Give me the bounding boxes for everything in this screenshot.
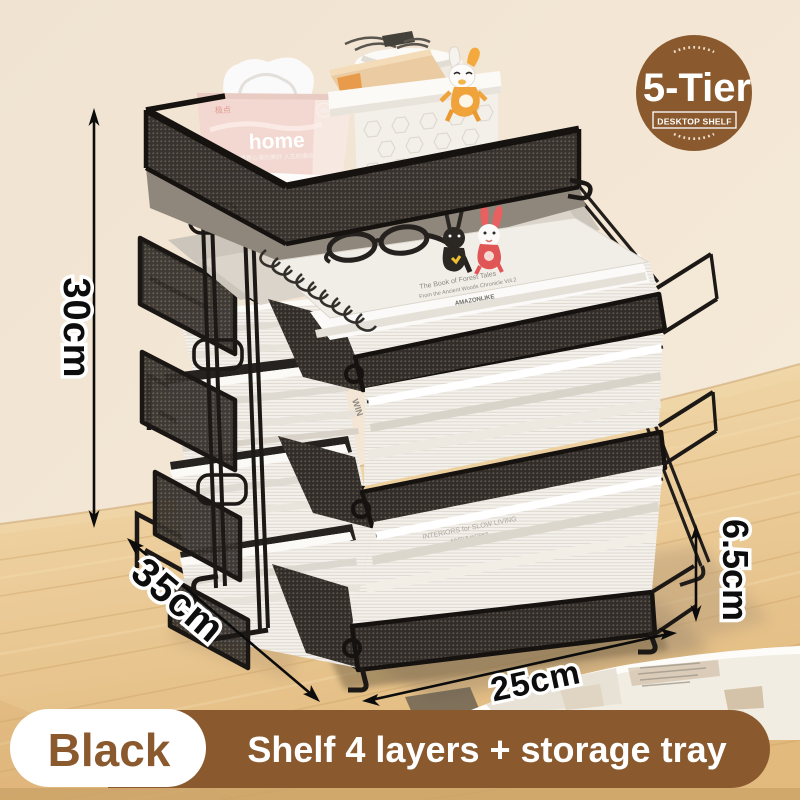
svg-text:DESKTOP SHELF: DESKTOP SHELF	[657, 117, 731, 127]
svg-text:Black: Black	[48, 724, 171, 776]
svg-text:极点: 极点	[215, 104, 231, 115]
svg-text:home: home	[248, 129, 305, 154]
svg-text:6.5cm: 6.5cm	[715, 519, 756, 621]
svg-text:5-Tier: 5-Tier	[643, 66, 751, 110]
svg-text:30cm: 30cm	[55, 277, 97, 378]
svg-text:Shelf 4 layers + storage tray: Shelf 4 layers + storage tray	[247, 729, 726, 770]
svg-text:48: 48	[320, 108, 328, 115]
